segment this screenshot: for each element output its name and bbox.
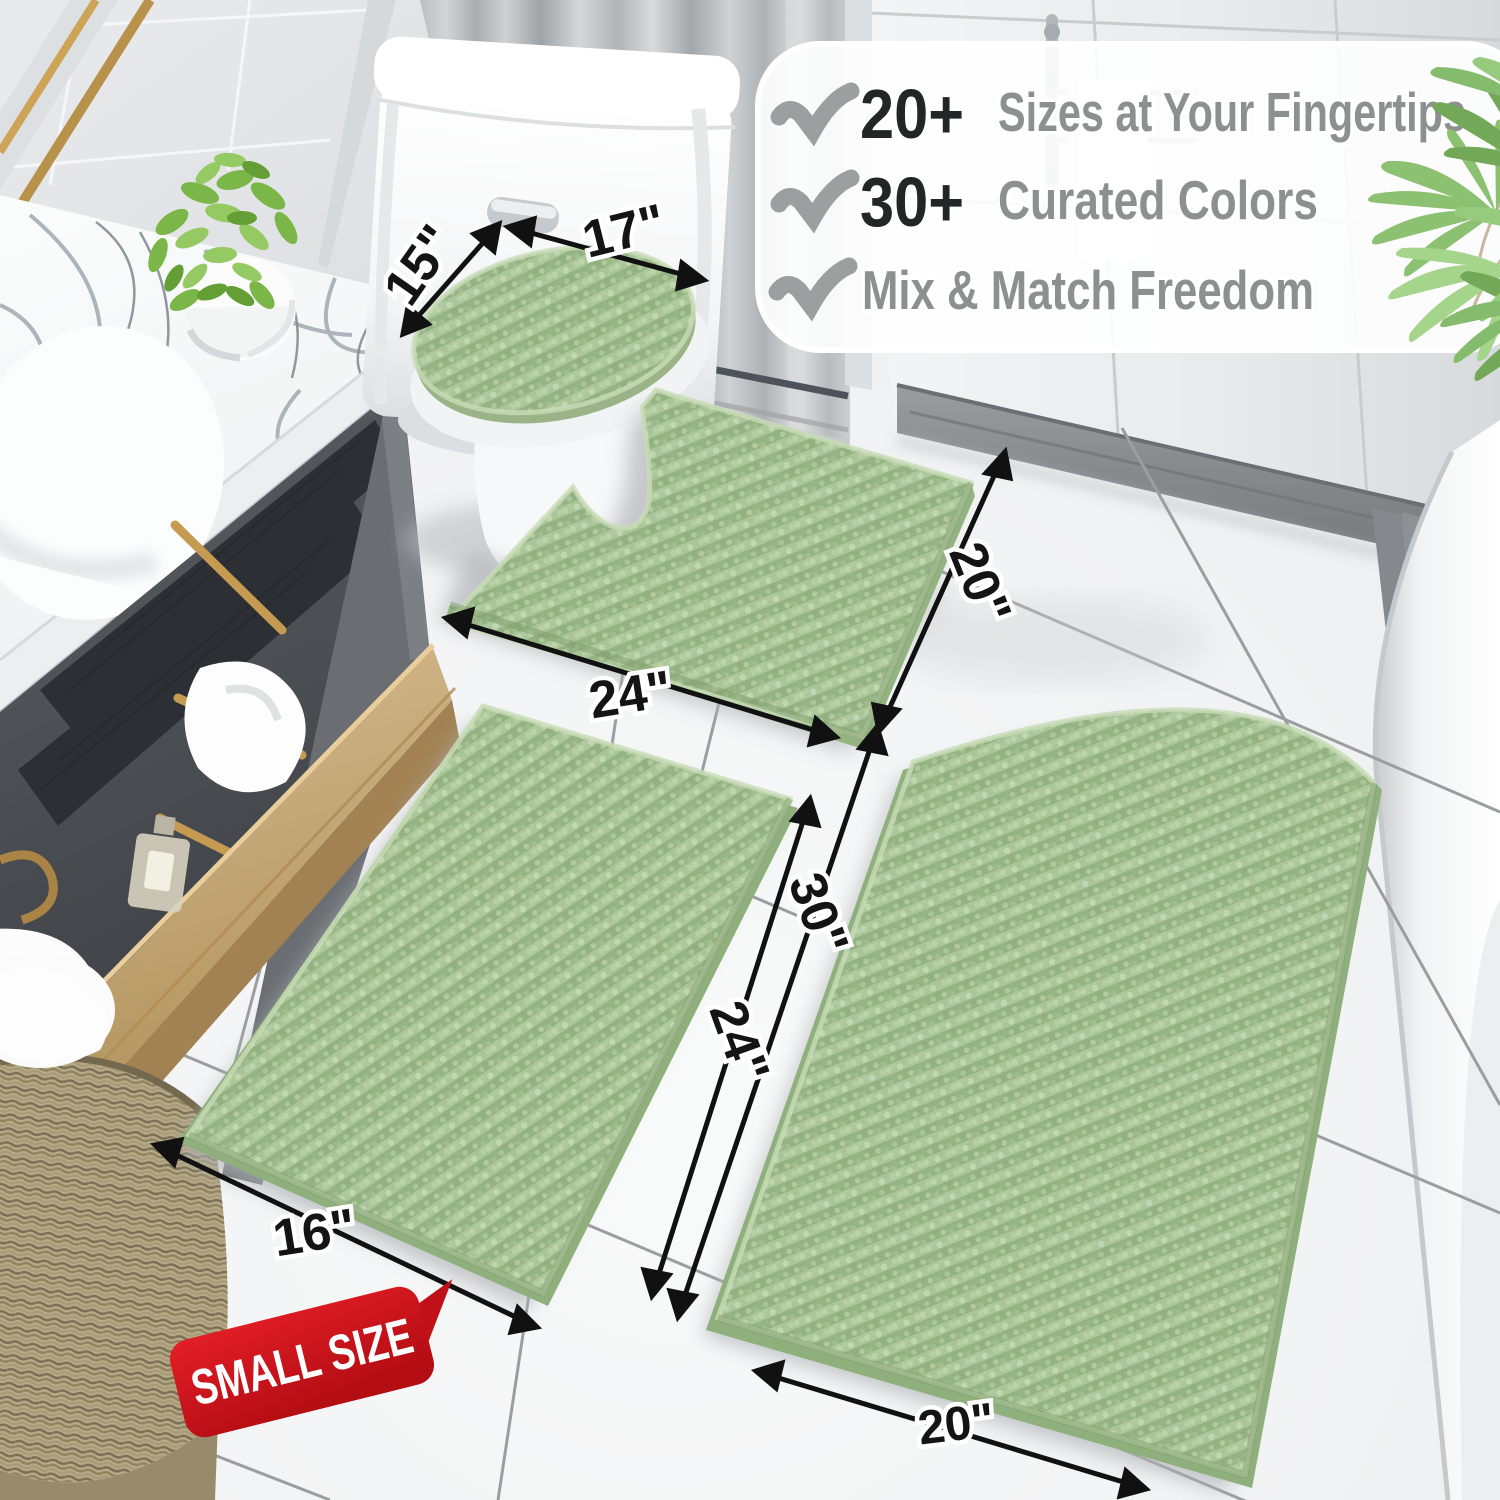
svg-text:20+: 20+ xyxy=(860,75,964,153)
svg-text:20": 20" xyxy=(915,1394,997,1456)
svg-text:Sizes at Your Fingertips: Sizes at Your Fingertips xyxy=(998,81,1466,143)
svg-text:Curated Colors: Curated Colors xyxy=(998,169,1318,231)
svg-text:30+: 30+ xyxy=(860,163,964,241)
svg-text:Mix & Match Freedom: Mix & Match Freedom xyxy=(862,259,1314,321)
